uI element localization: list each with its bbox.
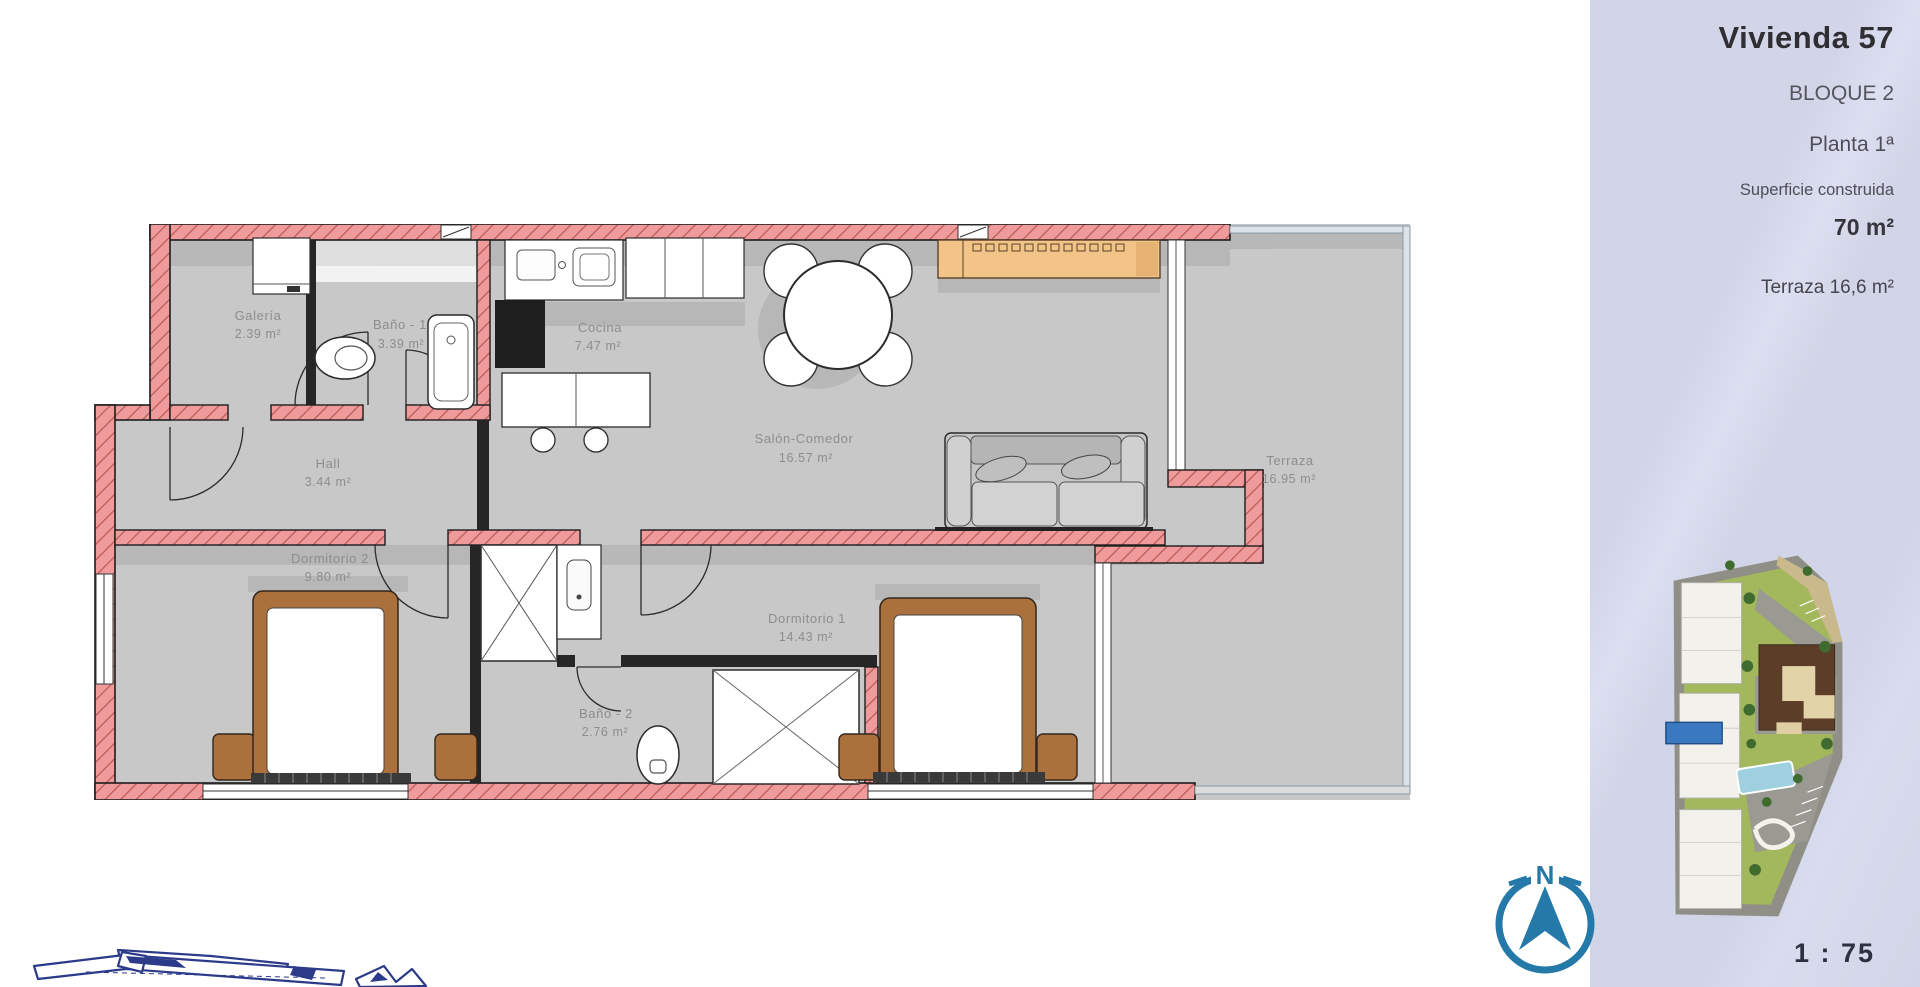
railing-bottom	[1195, 786, 1410, 794]
room-area-bath2: 2.76 m²	[582, 725, 629, 739]
brown-building	[1759, 645, 1835, 734]
north-arrow-icon	[1519, 886, 1571, 950]
toilet-bath1	[315, 337, 375, 379]
logo-shape-m	[356, 966, 426, 987]
room-label-bedroom2: Dormitorio 2	[291, 551, 369, 566]
room-area-bedroom2: 9.80 m²	[305, 570, 352, 584]
wall-bath2-top-b	[621, 655, 877, 667]
wall-bath2-top-a	[557, 655, 575, 667]
shower-tray	[713, 670, 859, 784]
wall-hall-kitchen	[477, 420, 489, 532]
fridge	[495, 300, 545, 368]
block-label: BLOQUE 2	[1610, 82, 1894, 106]
scale-label: 1 : 75	[1794, 938, 1875, 969]
dining-set	[764, 244, 912, 386]
wardrobe	[481, 545, 557, 661]
floor-plan: Galería 2.39 m² Baño - 1 3.39 m² Cocina …	[73, 224, 1414, 800]
info-sidebar: Vivienda 57 BLOQUE 2 Planta 1ª Superfici…	[1590, 0, 1920, 987]
site-plan-image	[1662, 548, 1856, 920]
room-label-terrace: Terraza	[1266, 453, 1314, 468]
residential-blocks	[1679, 583, 1741, 909]
room-label-livingroom: Salón-Comedor	[755, 431, 854, 446]
surface-value: 70 m²	[1610, 214, 1894, 241]
room-label-bath2: Baño - 2	[579, 706, 633, 721]
surface-label: Superficie construida	[1610, 181, 1894, 200]
dwelling-title: Vivienda 57	[1610, 20, 1894, 56]
room-area-terrace: 16.95 m²	[1262, 472, 1316, 486]
room-area-galeria: 2.39 m²	[235, 327, 282, 341]
room-label-galeria: Galería	[235, 308, 282, 323]
railing-top	[1230, 226, 1410, 233]
nightstand	[435, 734, 477, 780]
railing-right	[1403, 226, 1410, 788]
room-label-kitchen: Cocina	[578, 320, 622, 335]
unit-location-marker	[1666, 722, 1722, 743]
dining-table	[784, 261, 892, 369]
room-area-kitchen: 7.47 m²	[575, 339, 622, 353]
bath2-sink	[557, 545, 601, 639]
room-area-livingroom: 16.57 m²	[779, 451, 833, 465]
nightstand	[213, 734, 255, 780]
room-area-hall: 3.44 m²	[305, 475, 352, 489]
bathtub-bath1	[428, 315, 474, 409]
toilet-bath2	[637, 726, 679, 784]
sideboard	[938, 240, 1160, 278]
room-label-bedroom1: Dormitorio 1	[768, 611, 846, 626]
room-area-bedroom1: 14.43 m²	[779, 630, 833, 644]
room-label-bath1: Baño - 1	[373, 317, 427, 332]
wall-bath1-kitchen	[477, 240, 490, 420]
washing-machine	[253, 238, 310, 294]
room-label-hall: Hall	[316, 456, 341, 471]
terrace-value: Terraza 16,6 m²	[1610, 277, 1894, 299]
compass-north-label: N	[1536, 860, 1555, 890]
room-area-bath1: 3.39 m²	[378, 337, 425, 351]
floor-label: Planta 1ª	[1610, 133, 1894, 157]
north-compass: N	[1493, 846, 1597, 986]
wall-left-upper	[150, 224, 170, 420]
developer-logo	[26, 944, 466, 987]
sofa	[935, 433, 1153, 531]
